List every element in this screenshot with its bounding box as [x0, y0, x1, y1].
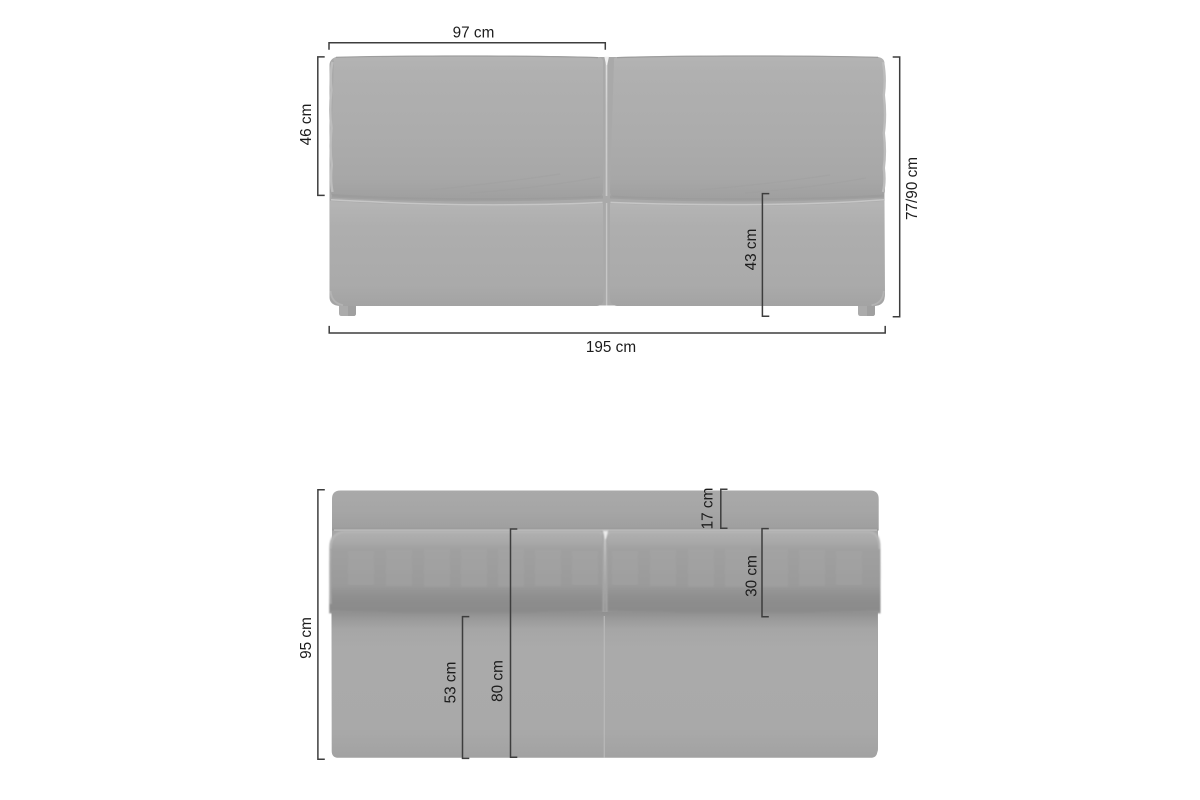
svg-text:43 cm: 43 cm	[743, 229, 760, 271]
svg-text:195 cm: 195 cm	[586, 339, 636, 356]
svg-text:80 cm: 80 cm	[490, 660, 507, 702]
svg-text:46 cm: 46 cm	[298, 104, 315, 146]
svg-text:30 cm: 30 cm	[744, 555, 761, 597]
svg-text:53 cm: 53 cm	[443, 662, 460, 704]
svg-text:97 cm: 97 cm	[453, 24, 495, 41]
svg-text:95 cm: 95 cm	[298, 617, 315, 659]
svg-text:77/90 cm: 77/90 cm	[904, 157, 921, 220]
svg-text:17 cm: 17 cm	[700, 488, 717, 530]
